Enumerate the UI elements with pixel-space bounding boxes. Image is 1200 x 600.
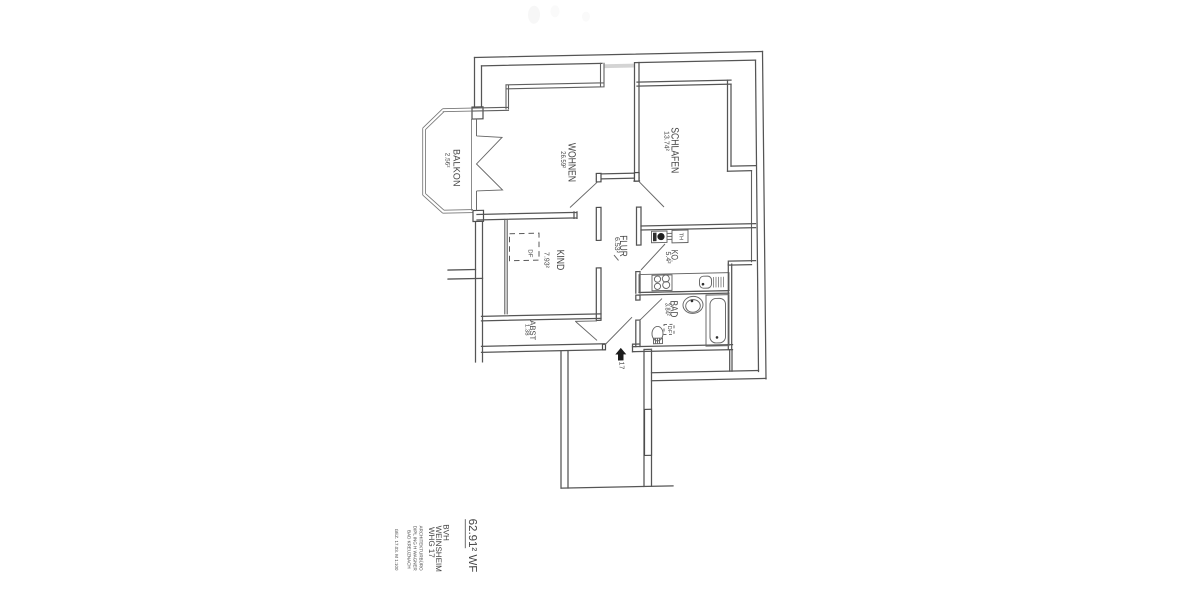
svg-text:5.4²: 5.4² [664, 251, 671, 264]
svg-text:BAD KREUZNACH: BAD KREUZNACH [407, 530, 412, 569]
svg-text:WHG 17: WHG 17 [427, 527, 436, 558]
svg-text:17: 17 [618, 361, 625, 369]
svg-text:13.74²: 13.74² [663, 131, 670, 152]
svg-text:DIPL ING H WAGNER: DIPL ING H WAGNER [413, 526, 418, 572]
svg-text:KIND: KIND [554, 250, 566, 271]
svg-text:1.38: 1.38 [523, 324, 529, 336]
svg-text:3.84²: 3.84² [663, 303, 671, 316]
svg-text:BALKON: BALKON [452, 149, 462, 187]
svg-text:2.56²: 2.56² [444, 153, 451, 169]
svg-text:DF: DF [666, 326, 672, 334]
svg-text:GEZ. 17.03. M 1:100: GEZ. 17.03. M 1:100 [394, 529, 399, 571]
svg-text:6.53²: 6.53² [613, 237, 620, 254]
svg-text:62.91² WF: 62.91² WF [466, 519, 478, 573]
svg-text:26.59²: 26.59² [559, 151, 567, 169]
svg-text:ARCHITEKTURBÜRO: ARCHITEKTURBÜRO [419, 526, 425, 572]
svg-text:TH: TH [678, 233, 684, 240]
svg-text:DF: DF [527, 249, 533, 257]
svg-text:7.93²: 7.93² [543, 252, 550, 269]
